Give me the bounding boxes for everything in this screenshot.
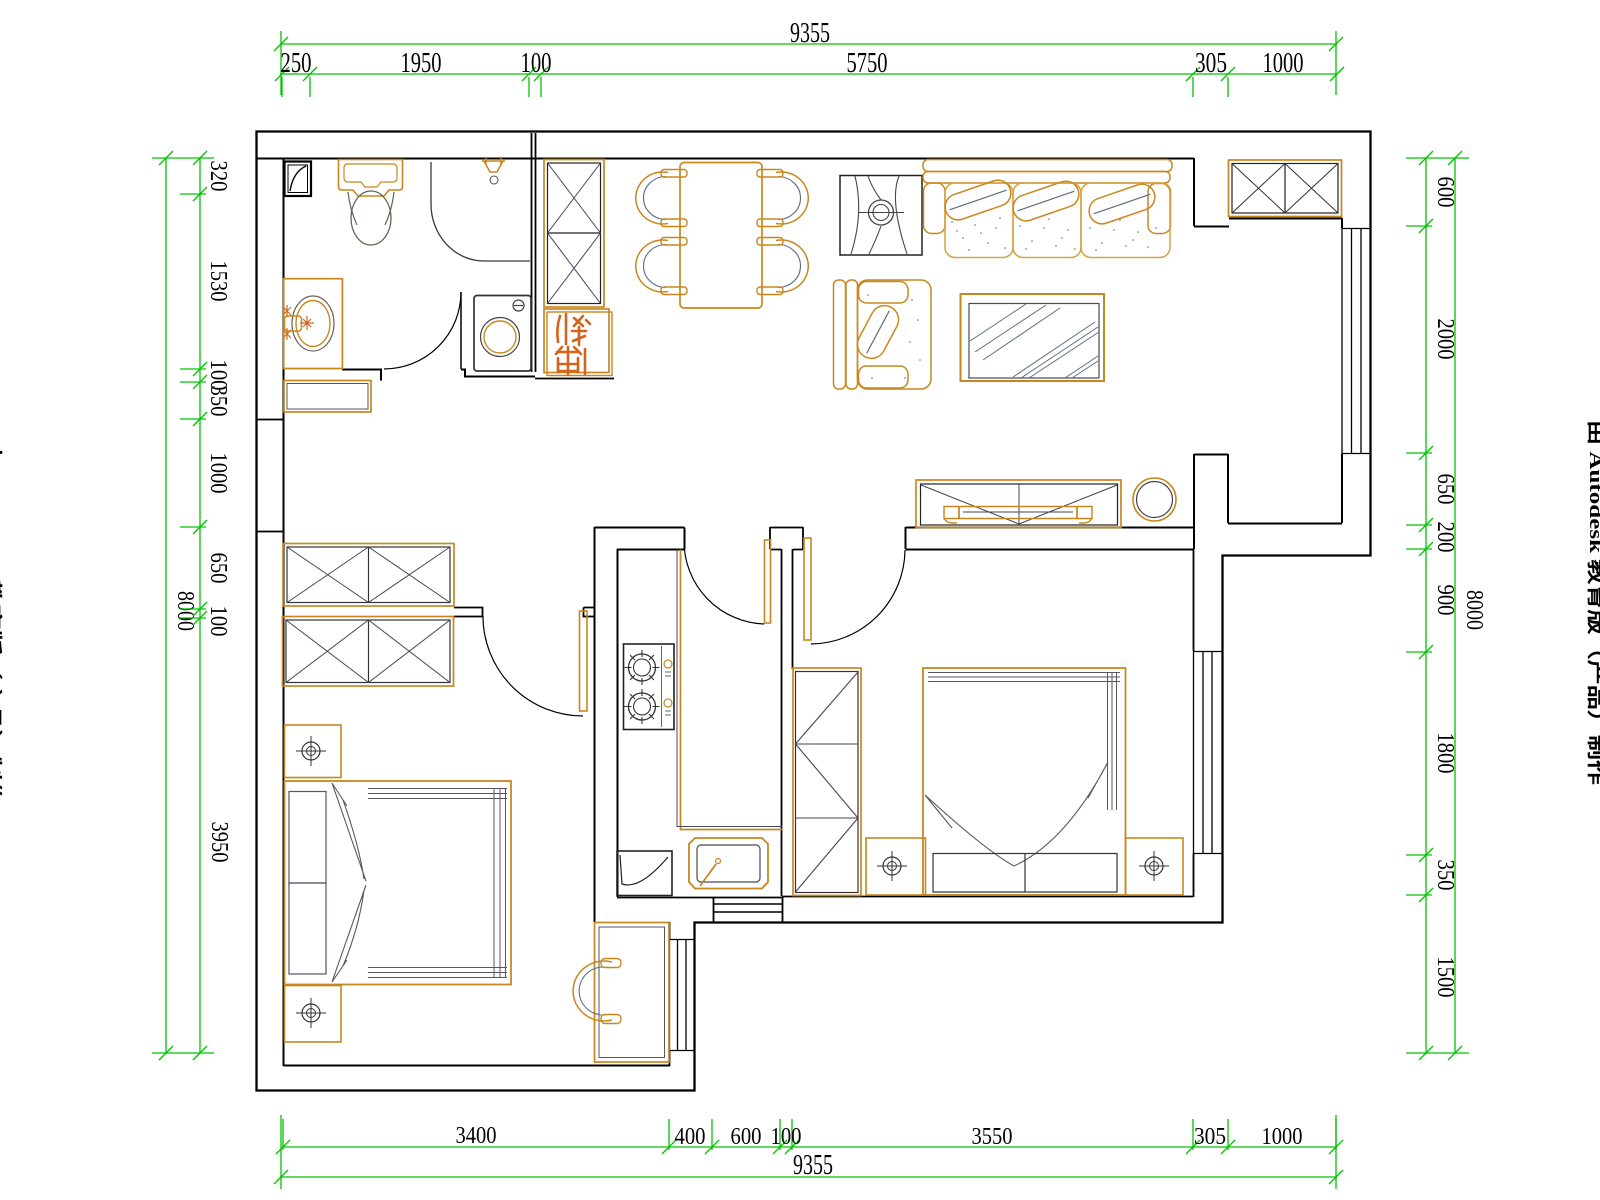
- svg-text:1000: 1000: [1263, 47, 1304, 79]
- svg-text:1500: 1500: [1432, 957, 1458, 998]
- svg-text:1000: 1000: [205, 453, 231, 494]
- svg-text:1000: 1000: [1262, 1124, 1303, 1150]
- svg-text:1530: 1530: [205, 261, 231, 302]
- svg-text:1950: 1950: [401, 47, 442, 79]
- svg-text:350: 350: [205, 386, 231, 417]
- svg-text:305: 305: [1194, 1124, 1226, 1150]
- svg-text:900: 900: [1432, 585, 1458, 616]
- svg-text:600: 600: [1432, 177, 1458, 208]
- svg-text:由 Autodesk 教育版（产品）制作: 由 Autodesk 教育版（产品）制作: [1585, 420, 1600, 785]
- svg-text:9355: 9355: [793, 1149, 833, 1181]
- svg-text:8000: 8000: [172, 591, 198, 631]
- svg-text:9355: 9355: [790, 17, 830, 49]
- svg-text:250: 250: [281, 47, 312, 79]
- svg-text:1800: 1800: [1432, 733, 1458, 774]
- svg-text:3950: 3950: [206, 822, 232, 863]
- svg-text:650: 650: [205, 553, 231, 584]
- svg-text:3400: 3400: [456, 1123, 497, 1149]
- svg-text:100: 100: [521, 47, 552, 79]
- svg-text:600: 600: [731, 1124, 762, 1150]
- svg-text:2000: 2000: [1432, 319, 1458, 360]
- svg-text:100: 100: [771, 1124, 802, 1150]
- svg-text:320: 320: [205, 161, 231, 192]
- svg-text:650: 650: [1432, 474, 1458, 505]
- svg-text:3550: 3550: [972, 1124, 1013, 1150]
- svg-text:305: 305: [1195, 47, 1227, 79]
- svg-text:400: 400: [675, 1124, 706, 1150]
- svg-text:8000: 8000: [1461, 590, 1487, 630]
- svg-text:5750: 5750: [847, 47, 888, 79]
- svg-text:200: 200: [1432, 522, 1458, 553]
- svg-text:350: 350: [1432, 860, 1458, 891]
- svg-text:100: 100: [205, 606, 231, 637]
